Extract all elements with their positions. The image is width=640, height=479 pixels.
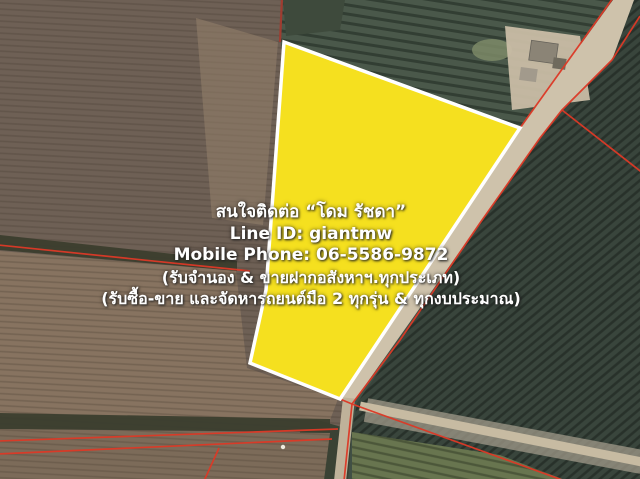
grass-patch xyxy=(472,39,512,61)
white-speck xyxy=(281,445,285,449)
land-listing-image: สนใจติดต่อ “โดม รัชดา” Line ID: giantmw … xyxy=(0,0,640,479)
bottom-field-texture xyxy=(0,429,330,479)
satellite-map xyxy=(0,0,640,479)
